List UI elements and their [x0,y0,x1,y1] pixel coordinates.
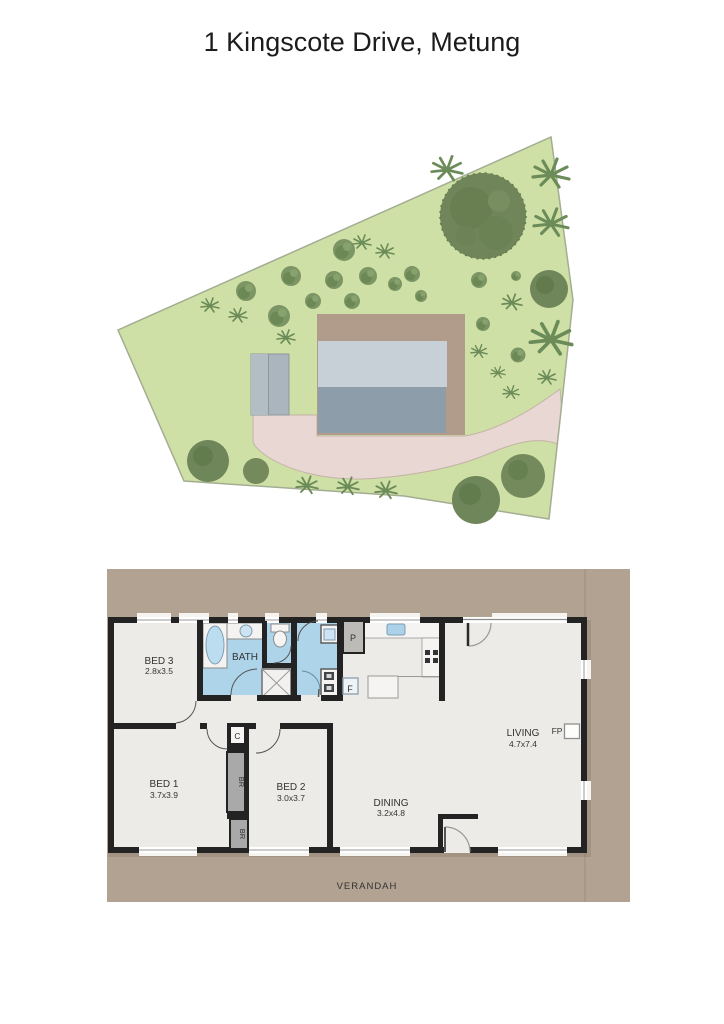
svg-text:BR: BR [237,777,246,788]
svg-text:VERANDAH: VERANDAH [337,881,398,892]
svg-text:BED 1: BED 1 [150,779,179,790]
svg-text:F: F [347,684,353,694]
svg-text:3.0x3.7: 3.0x3.7 [277,793,305,803]
svg-text:2.8x3.5: 2.8x3.5 [145,666,173,676]
svg-text:BED 2: BED 2 [277,782,306,793]
svg-text:P: P [350,633,356,643]
svg-text:3.2x4.8: 3.2x4.8 [377,808,405,818]
svg-text:C: C [234,731,240,741]
svg-text:3.7x3.9: 3.7x3.9 [150,790,178,800]
svg-text:BATH: BATH [232,652,258,663]
svg-text:FP: FP [552,726,563,736]
svg-text:BR: BR [238,829,247,840]
svg-text:4.7x7.4: 4.7x7.4 [509,739,537,749]
svg-text:LIVING: LIVING [507,728,540,739]
